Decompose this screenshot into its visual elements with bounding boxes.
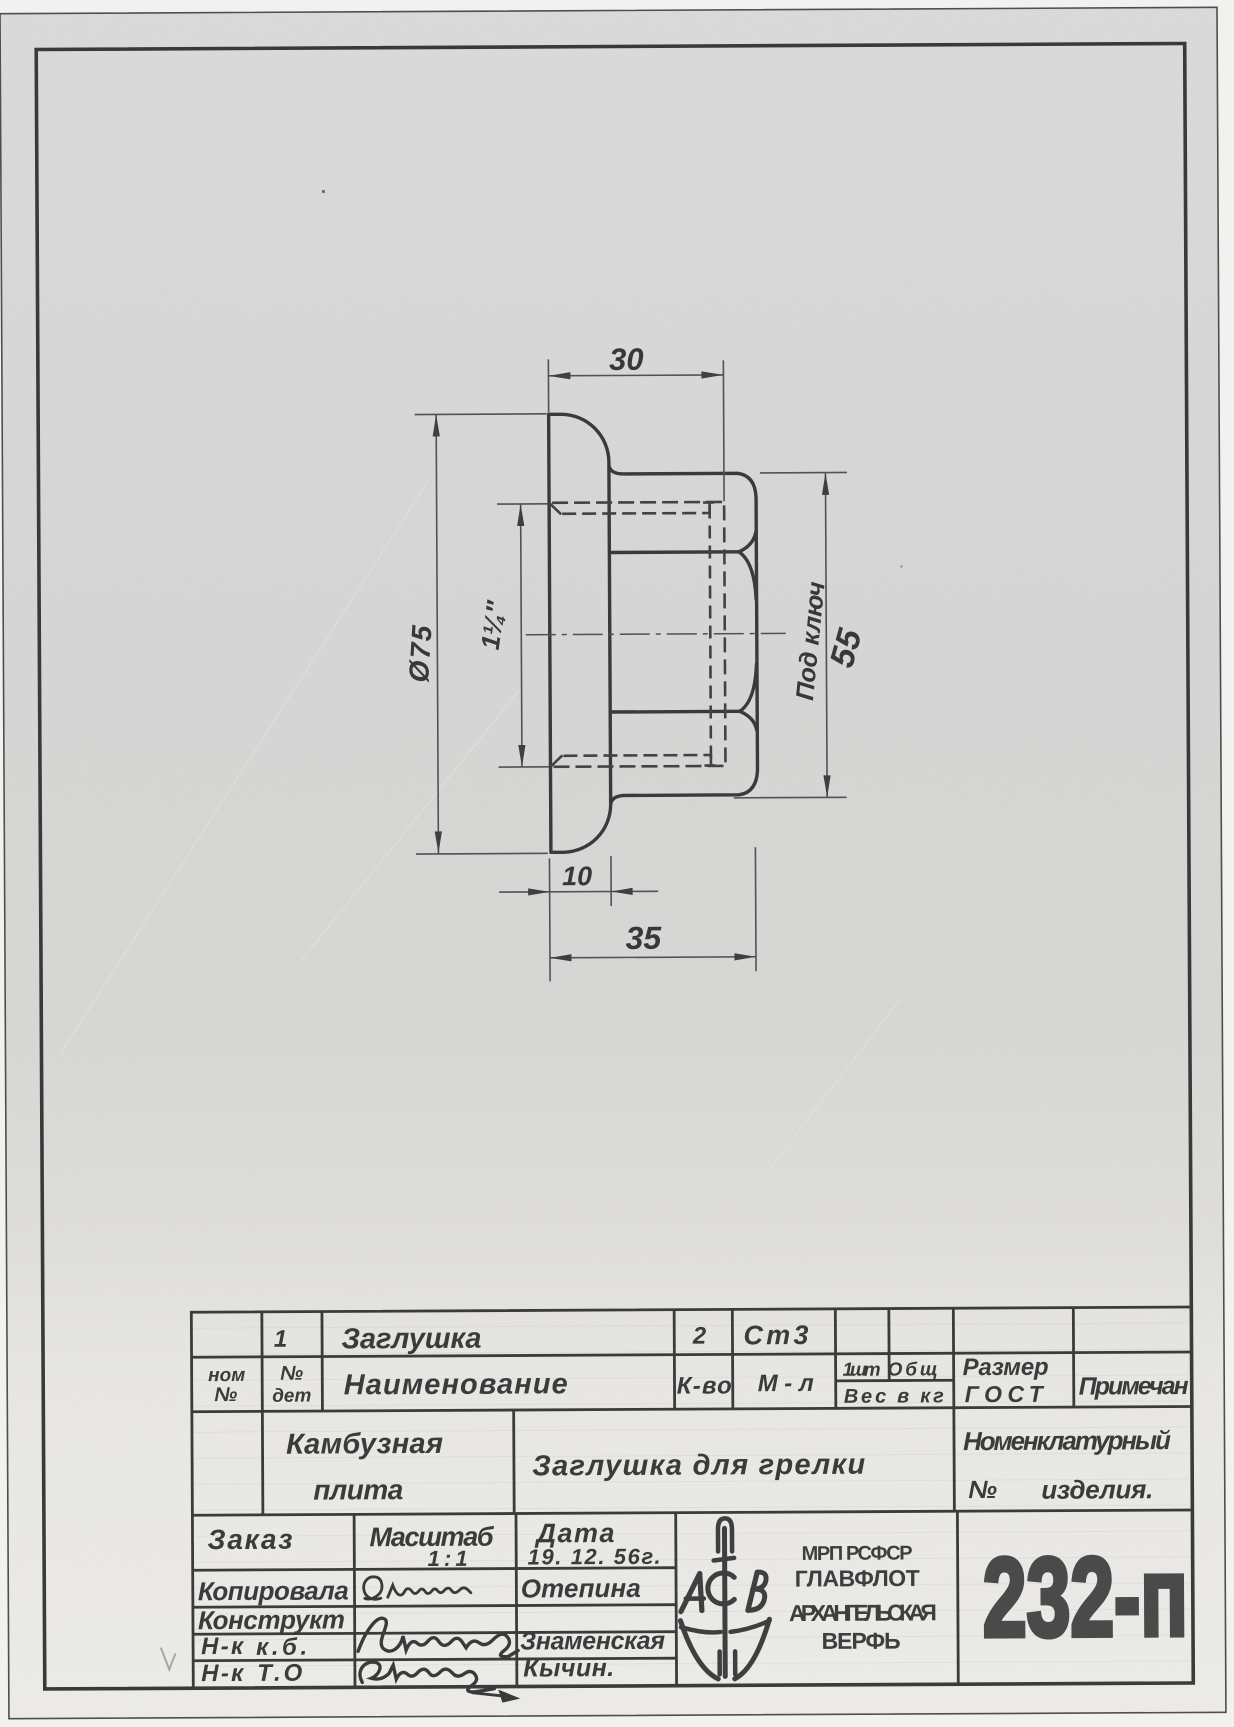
svg-text:Примечан: Примечан [1079,1372,1189,1401]
svg-text:10: 10 [562,861,592,891]
svg-text:ном: ном [208,1365,245,1386]
svg-text:19. 12. 56г.: 19. 12. 56г. [528,1544,661,1570]
svg-text:к.б.: к.б. [256,1634,307,1661]
svg-text:№: № [214,1384,237,1406]
svg-text:232-п: 232-п [983,1534,1189,1660]
svg-text:Т.О: Т.О [257,1660,302,1687]
svg-text:30: 30 [609,342,644,377]
svg-text:дет: дет [272,1386,311,1407]
svg-text:МРП РСФСР: МРП РСФСР [802,1542,913,1565]
svg-text:2: 2 [692,1323,707,1350]
svg-text:Заказ: Заказ [207,1524,292,1555]
svg-text:Заглушка для грелки: Заглушка для грелки [532,1449,865,1483]
svg-text:Заглушка: Заглушка [341,1323,481,1356]
svg-text:Отепина: Отепина [521,1573,641,1604]
svg-text:Ст3: Ст3 [743,1320,808,1350]
svg-text:Наименование: Наименование [344,1368,568,1401]
svg-text:Общ: Общ [888,1359,938,1380]
svg-text:Н-к: Н-к [201,1633,245,1660]
svg-text:ГЛАВФЛОТ: ГЛАВФЛОТ [795,1565,920,1592]
svg-text:№: № [280,1363,303,1385]
svg-text:Н-к: Н-к [201,1660,245,1687]
svg-text:плита: плита [313,1474,403,1505]
svg-text:1: 1 [274,1326,288,1353]
svg-text:Копировала: Копировала [198,1575,349,1606]
svg-text:К-во: К-во [677,1372,732,1399]
svg-text:Камбузная: Камбузная [286,1428,443,1461]
svg-text:Кычин.: Кычин. [523,1654,614,1682]
svg-text:изделия.: изделия. [1041,1474,1153,1505]
svg-text:Ø75: Ø75 [403,623,438,684]
svg-text:М-л: М-л [758,1370,814,1397]
svg-text:1шт: 1шт [843,1360,881,1381]
svg-text:Знаменская: Знаменская [520,1627,665,1656]
svg-text:АРХАНГЕЛЬСКАЯ: АРХАНГЕЛЬСКАЯ [789,1599,937,1626]
svg-text:№: № [968,1476,997,1504]
svg-text:ВЕРФЬ: ВЕРФЬ [821,1628,900,1654]
svg-text:Номенклатурный: Номенклатурный [963,1425,1171,1456]
svg-text:Размер: Размер [963,1354,1049,1381]
svg-text:35: 35 [625,920,662,956]
svg-text:1:1: 1:1 [428,1546,468,1571]
svg-text:Конструкт: Конструкт [198,1604,345,1635]
